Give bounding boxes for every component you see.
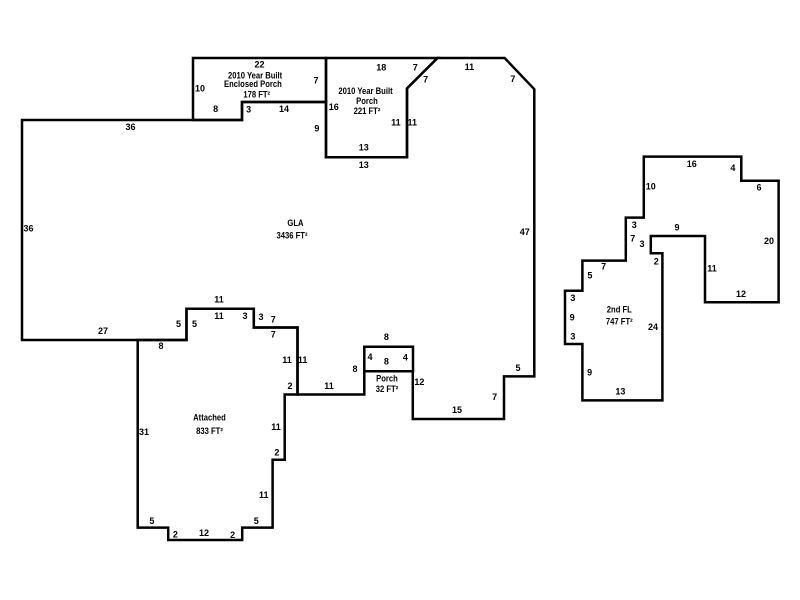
- svg-text:11: 11: [465, 62, 475, 72]
- svg-text:7: 7: [271, 330, 276, 340]
- svg-text:7: 7: [510, 74, 515, 84]
- svg-text:10: 10: [195, 84, 205, 94]
- svg-text:5: 5: [149, 516, 154, 526]
- svg-text:Enclosed Porch: Enclosed Porch: [224, 79, 282, 90]
- svg-text:47: 47: [520, 227, 530, 237]
- svg-text:16: 16: [687, 159, 697, 169]
- svg-text:31: 31: [139, 427, 149, 437]
- svg-text:833 FT²: 833 FT²: [196, 425, 223, 436]
- svg-text:11: 11: [707, 264, 717, 274]
- svg-text:5: 5: [587, 271, 592, 281]
- svg-text:7: 7: [413, 63, 418, 73]
- svg-text:24: 24: [648, 322, 658, 332]
- svg-text:36: 36: [23, 224, 33, 234]
- svg-text:9: 9: [587, 367, 592, 377]
- svg-text:178 FT²: 178 FT²: [243, 89, 270, 100]
- svg-text:2: 2: [274, 447, 279, 457]
- svg-text:11: 11: [407, 118, 417, 128]
- svg-text:12: 12: [414, 377, 424, 387]
- svg-text:2: 2: [287, 381, 292, 391]
- svg-text:2nd FL: 2nd FL: [607, 304, 632, 315]
- svg-text:13: 13: [359, 160, 369, 170]
- svg-text:14: 14: [279, 104, 289, 114]
- svg-text:5: 5: [176, 319, 181, 329]
- svg-text:11: 11: [214, 311, 224, 321]
- svg-text:9: 9: [674, 223, 679, 233]
- svg-text:Porch: Porch: [376, 373, 398, 384]
- svg-text:11: 11: [282, 355, 292, 365]
- svg-text:3: 3: [246, 105, 251, 115]
- svg-text:3: 3: [242, 311, 247, 321]
- svg-text:20: 20: [764, 236, 774, 246]
- svg-text:8: 8: [158, 341, 163, 351]
- svg-text:7: 7: [423, 75, 428, 85]
- svg-text:27: 27: [98, 326, 108, 336]
- svg-text:Attached: Attached: [193, 412, 226, 423]
- svg-text:18: 18: [376, 63, 386, 73]
- svg-text:8: 8: [384, 357, 389, 367]
- svg-text:6: 6: [756, 183, 761, 193]
- svg-text:8: 8: [384, 332, 389, 342]
- svg-text:11: 11: [259, 490, 269, 500]
- svg-text:4: 4: [730, 163, 735, 173]
- svg-text:747 FT²: 747 FT²: [606, 316, 633, 327]
- svg-text:8: 8: [213, 104, 218, 114]
- svg-text:32 FT²: 32 FT²: [376, 383, 399, 394]
- svg-text:13: 13: [359, 142, 369, 152]
- svg-text:3436 FT²: 3436 FT²: [276, 230, 307, 241]
- svg-text:22: 22: [254, 60, 264, 70]
- svg-text:11: 11: [271, 422, 281, 432]
- svg-text:2: 2: [654, 257, 659, 267]
- svg-text:9: 9: [570, 312, 575, 322]
- svg-text:11: 11: [298, 355, 308, 365]
- svg-text:7: 7: [492, 392, 497, 402]
- svg-text:3: 3: [570, 331, 575, 341]
- svg-text:11: 11: [391, 118, 401, 128]
- svg-text:3: 3: [570, 293, 575, 303]
- svg-text:5: 5: [515, 363, 520, 373]
- svg-text:4: 4: [367, 352, 372, 362]
- svg-text:2: 2: [173, 530, 178, 540]
- svg-text:15: 15: [452, 405, 462, 415]
- svg-text:3: 3: [258, 312, 263, 322]
- svg-text:8: 8: [352, 364, 357, 374]
- svg-text:9: 9: [314, 124, 319, 134]
- svg-text:221 FT²: 221 FT²: [354, 105, 381, 116]
- svg-text:2: 2: [230, 530, 235, 540]
- svg-text:4: 4: [403, 353, 408, 363]
- svg-text:11: 11: [324, 381, 334, 391]
- svg-text:16: 16: [329, 102, 339, 112]
- svg-text:5: 5: [192, 319, 197, 329]
- svg-text:7: 7: [630, 234, 635, 244]
- svg-text:3: 3: [639, 239, 644, 249]
- svg-text:3: 3: [632, 220, 637, 230]
- svg-text:10: 10: [646, 182, 656, 192]
- svg-text:12: 12: [736, 289, 746, 299]
- svg-text:13: 13: [615, 387, 625, 397]
- svg-text:7: 7: [313, 76, 318, 86]
- svg-text:36: 36: [125, 122, 135, 132]
- svg-text:7: 7: [271, 315, 276, 325]
- svg-text:11: 11: [214, 295, 224, 305]
- svg-text:7: 7: [601, 262, 606, 272]
- svg-text:GLA: GLA: [287, 217, 303, 228]
- svg-text:5: 5: [254, 516, 259, 526]
- svg-text:12: 12: [199, 528, 209, 538]
